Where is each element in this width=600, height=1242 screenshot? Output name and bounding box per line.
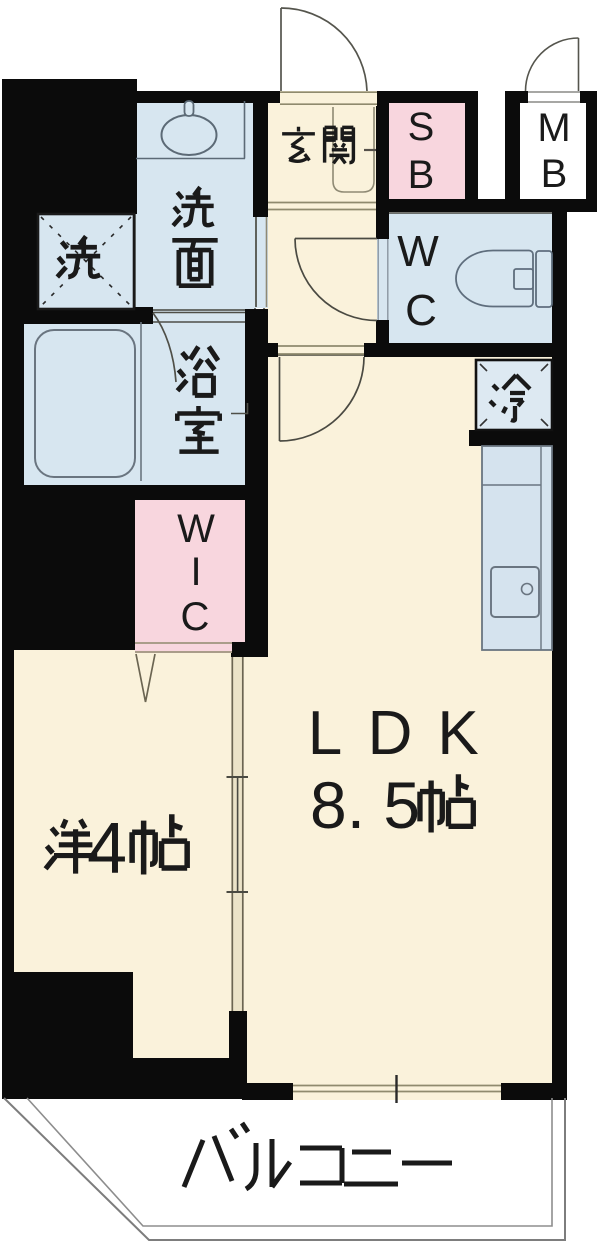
svg-text:W: W: [397, 227, 439, 276]
svg-text:B: B: [541, 152, 568, 196]
svg-text:C: C: [181, 595, 210, 639]
svg-text:4: 4: [87, 809, 127, 889]
svg-text:I: I: [190, 550, 201, 594]
svg-text:W: W: [177, 507, 215, 551]
svg-text:C: C: [405, 286, 437, 335]
svg-text:LDK: LDK: [308, 699, 479, 768]
svg-text:B: B: [408, 153, 435, 197]
svg-text:M: M: [537, 106, 570, 150]
svg-text:8. 5: 8. 5: [310, 768, 420, 842]
svg-text:S: S: [408, 105, 435, 149]
